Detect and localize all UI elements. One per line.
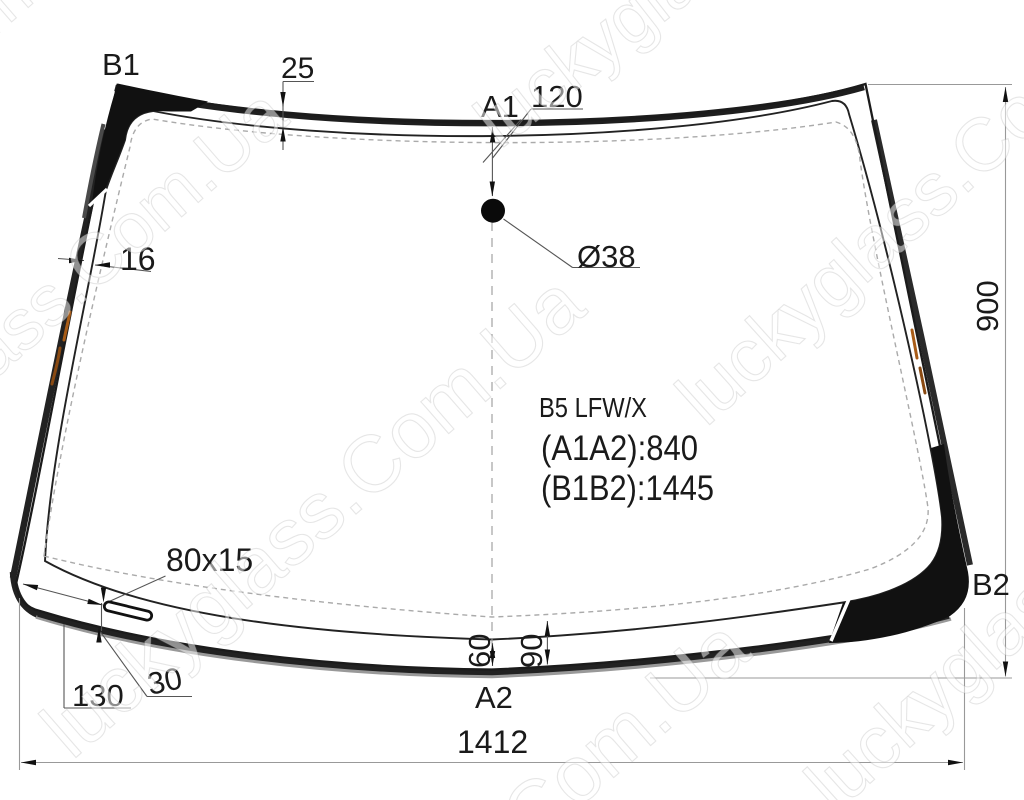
svg-text:60: 60 <box>462 634 497 668</box>
svg-text:A2: A2 <box>475 680 513 715</box>
svg-text:1412: 1412 <box>457 724 528 760</box>
svg-text:B5 LFW/X: B5 LFW/X <box>539 392 647 423</box>
svg-text:(B1B2):1445: (B1B2):1445 <box>541 469 714 508</box>
svg-text:luckyglass.Com.Ua: luckyglass.Com.Ua <box>461 0 997 163</box>
svg-text:900: 900 <box>970 280 1005 332</box>
svg-text:Ø38: Ø38 <box>577 239 636 274</box>
svg-text:B1: B1 <box>102 47 140 82</box>
svg-text:luckyglass.Com.Ua: luckyglass.Com.Ua <box>0 73 302 538</box>
svg-text:(A1A2):840: (A1A2):840 <box>541 429 698 468</box>
svg-text:90: 90 <box>514 634 549 668</box>
svg-text:25: 25 <box>281 52 314 85</box>
svg-text:luckyglass.Com.Ua: luckyglass.Com.Ua <box>660 0 1024 440</box>
svg-text:luckyglass.Com.Ua: luckyglass.Com.Ua <box>25 257 600 774</box>
